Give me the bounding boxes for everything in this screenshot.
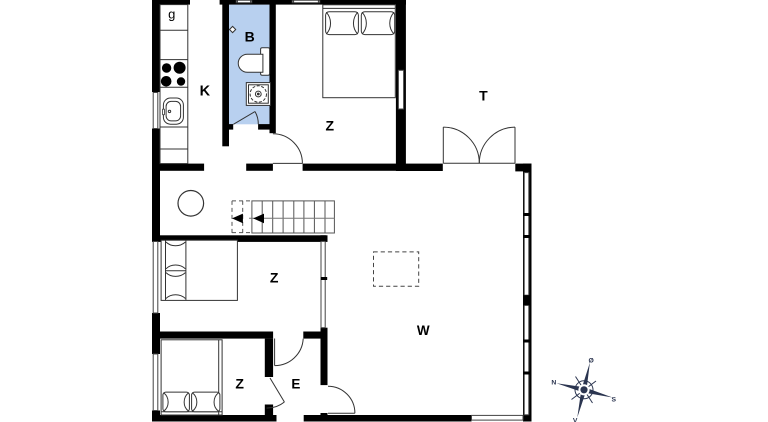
svg-text:Z: Z [235,375,244,391]
svg-text:W: W [417,323,430,338]
svg-text:Z: Z [326,118,335,134]
svg-text:S: S [612,397,617,404]
svg-text:Z: Z [270,269,279,285]
svg-text:K: K [200,84,211,100]
svg-text:V: V [573,417,578,422]
svg-text:Ø: Ø [589,357,594,364]
svg-text:B: B [245,29,255,45]
svg-text:g: g [168,7,175,22]
svg-text:N: N [551,379,556,386]
svg-text:T: T [479,88,488,104]
svg-text:E: E [291,376,300,391]
